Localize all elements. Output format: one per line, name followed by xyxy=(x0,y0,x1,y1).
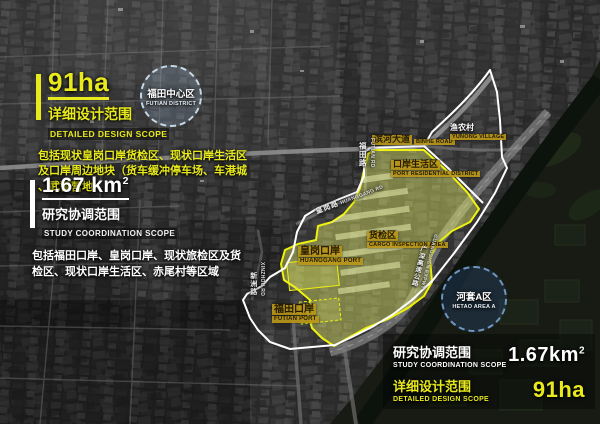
futian-port-en: FUTIAN PORT xyxy=(272,316,319,323)
legend-design-row: 详细设计范围 DETAILED DESIGN SCOPE 91ha xyxy=(393,376,585,403)
design-area-value: 91ha xyxy=(48,70,109,100)
design-scope-panel: 91ha 详细设计范围 DETAILED DESIGN SCOPE 包括现状皇岗… xyxy=(36,70,276,180)
yunong-village-en: YUNONG VILLAGE xyxy=(450,134,506,140)
huanggang-port-zh: 皇岗口岸 xyxy=(298,246,342,257)
huanggang-port-label: 皇岗口岸 HUANGGANG PORT xyxy=(298,246,363,265)
hetao-area-label-en: HETAO AREA A xyxy=(452,304,495,310)
futian-road-label: 福田路 FUTIAN RD xyxy=(358,138,374,168)
legend-design-value: 91ha xyxy=(533,377,585,403)
scope-legend: 研究协调范围 STUDY COORDINATION SCOPE 1.67km2 … xyxy=(383,334,595,409)
legend-study-value-num: 1.67km xyxy=(508,344,579,366)
hetao-area-label-zh: 河套A区 xyxy=(456,289,491,303)
legend-study-value: 1.67km2 xyxy=(508,344,585,367)
study-area-value: 1.67 km2 xyxy=(42,176,129,200)
study-desc-line1: 包括福田口岸、皇岗口岸、现状旅检区及货 xyxy=(32,248,252,264)
binhe-road-en: BINHE ROAD xyxy=(414,139,455,145)
design-desc-line1: 包括现状皇岗口岸货检区、现状口岸生活区 xyxy=(38,149,263,165)
design-title-zh: 详细设计范围 xyxy=(48,104,276,124)
legend-study-en: STUDY COORDINATION SCOPE xyxy=(393,362,507,369)
study-title-zh: 研究协调范围 xyxy=(42,204,270,223)
yunong-village-label: 渔农村 YUNONG VILLAGE xyxy=(450,124,506,140)
legend-study-value-sup: 2 xyxy=(579,345,585,356)
binhe-road-label: 滨河大道 BINHE ROAD xyxy=(372,135,455,145)
legend-study-row: 研究协调范围 STUDY COORDINATION SCOPE 1.67km2 xyxy=(393,342,585,369)
futian-port-zh: 福田口岸 xyxy=(272,304,316,315)
legend-design-en: DETAILED DESIGN SCOPE xyxy=(393,396,489,403)
legend-design-zh: 详细设计范围 xyxy=(393,376,489,395)
study-title-en: STUDY COORDINATION SCOPE xyxy=(42,228,177,239)
binhe-road-zh: 滨河大道 xyxy=(372,135,412,145)
hetao-area-circle: 河套A区 HETAO AREA A xyxy=(441,266,507,332)
futian-port-label: 福田口岸 FUTIAN PORT xyxy=(272,304,319,323)
port-living-area-zh: 口岸生活区 xyxy=(391,160,440,170)
study-scope-panel: 1.67 km2 研究协调范围 STUDY COORDINATION SCOPE… xyxy=(30,176,270,276)
design-title-en: DETAILED DESIGN SCOPE xyxy=(48,128,169,140)
cargo-area-zh: 货检区 xyxy=(367,231,398,241)
study-area-value-num: 1.67 km xyxy=(42,174,123,197)
study-panel-bar xyxy=(30,180,35,228)
study-area-value-sup: 2 xyxy=(123,175,129,187)
yunong-village-zh: 渔农村 xyxy=(450,124,474,133)
design-panel-bar xyxy=(36,74,41,120)
futian-road-en: FUTIAN RD xyxy=(368,138,374,168)
legend-study-zh: 研究协调范围 xyxy=(393,342,507,361)
planning-scope-map: 福田中心区 FUTIAN DISTRICT 河套A区 HETAO AREA A … xyxy=(0,0,600,424)
study-description: 包括福田口岸、皇岗口岸、现状旅检区及货 检区、现状口岸生活区、赤尾村等区域 xyxy=(32,248,252,280)
futian-road-zh: 福田路 xyxy=(358,142,366,168)
port-living-area-label: 口岸生活区 PORT RESIDENTIAL DISTRICT xyxy=(391,160,480,177)
huanggang-port-en: HUANGGANG PORT xyxy=(298,258,363,265)
study-desc-line2: 检区、现状口岸生活区、赤尾村等区域 xyxy=(32,264,252,280)
port-living-area-en: PORT RESIDENTIAL DISTRICT xyxy=(391,171,480,177)
